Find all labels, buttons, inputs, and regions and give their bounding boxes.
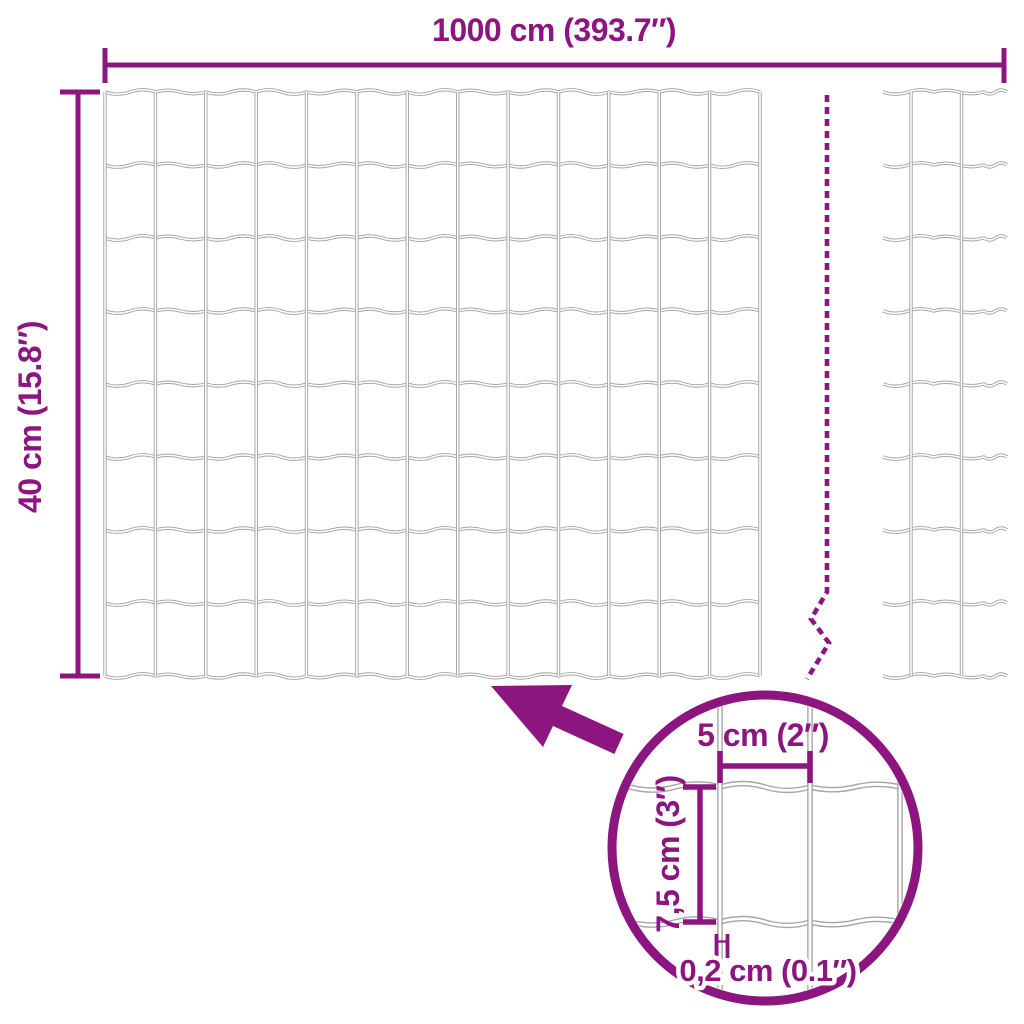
- height-dimension-label: 40 cm (15.8″): [12, 321, 48, 513]
- width-dimension-line: [105, 48, 1004, 83]
- mesh-panel-left: [105, 90, 760, 678]
- diagram-stage: 1000 cm (393.7″) 40 cm (15.8″) 5 cm (2″)…: [0, 0, 1024, 1024]
- zoom-arrow-icon: [491, 685, 624, 754]
- mesh-cell-height-label: 7,5 cm (3″): [650, 775, 686, 932]
- mesh-cell-width-label: 5 cm (2″): [697, 717, 829, 753]
- fence-dimension-diagram: 1000 cm (393.7″) 40 cm (15.8″) 5 cm (2″)…: [0, 0, 1024, 1024]
- break-dashed-line: [807, 95, 829, 679]
- height-dimension-line: [60, 92, 100, 676]
- mesh-panel-right: [883, 90, 1007, 678]
- width-dimension-label: 1000 cm (393.7″): [432, 12, 676, 48]
- wire-thickness-label: 0,2 cm (0.1″): [679, 953, 856, 988]
